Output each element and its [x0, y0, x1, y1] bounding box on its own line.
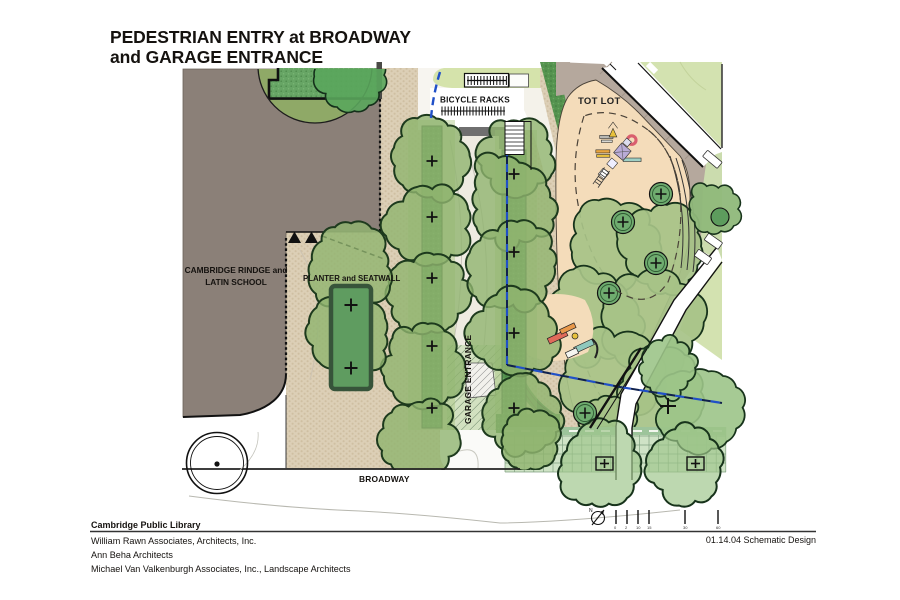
svg-text:60: 60 [716, 525, 721, 530]
svg-text:PEDESTRIAN ENTRY at BROADWAY: PEDESTRIAN ENTRY at BROADWAY [110, 27, 411, 47]
svg-text:TOT LOT: TOT LOT [578, 96, 621, 107]
svg-text:10: 10 [636, 525, 641, 530]
svg-text:Michael Van Valkenburgh Associ: Michael Van Valkenburgh Associates, Inc.… [91, 564, 351, 574]
svg-text:01.14.04 Schematic Design: 01.14.04 Schematic Design [706, 535, 816, 545]
svg-text:and GARAGE ENTRANCE: and GARAGE ENTRANCE [110, 47, 323, 67]
svg-text:30: 30 [683, 525, 688, 530]
svg-text:PLANTER and SEATWALL: PLANTER and SEATWALL [303, 274, 401, 283]
svg-text:Ann Beha Architects: Ann Beha Architects [91, 550, 173, 560]
svg-text:BROADWAY: BROADWAY [359, 474, 410, 484]
svg-text:BICYCLE RACKS: BICYCLE RACKS [440, 96, 510, 105]
svg-text:LATIN SCHOOL: LATIN SCHOOL [205, 277, 267, 287]
svg-text:GARAGE ENTRANCE: GARAGE ENTRANCE [463, 335, 473, 424]
svg-text:N: N [589, 508, 593, 514]
svg-text:15: 15 [647, 525, 652, 530]
svg-text:Cambridge Public Library: Cambridge Public Library [91, 520, 201, 530]
svg-text:William Rawn Associates, Archi: William Rawn Associates, Architects, Inc… [91, 536, 256, 546]
svg-text:CAMBRIDGE RINDGE and: CAMBRIDGE RINDGE and [185, 265, 288, 275]
